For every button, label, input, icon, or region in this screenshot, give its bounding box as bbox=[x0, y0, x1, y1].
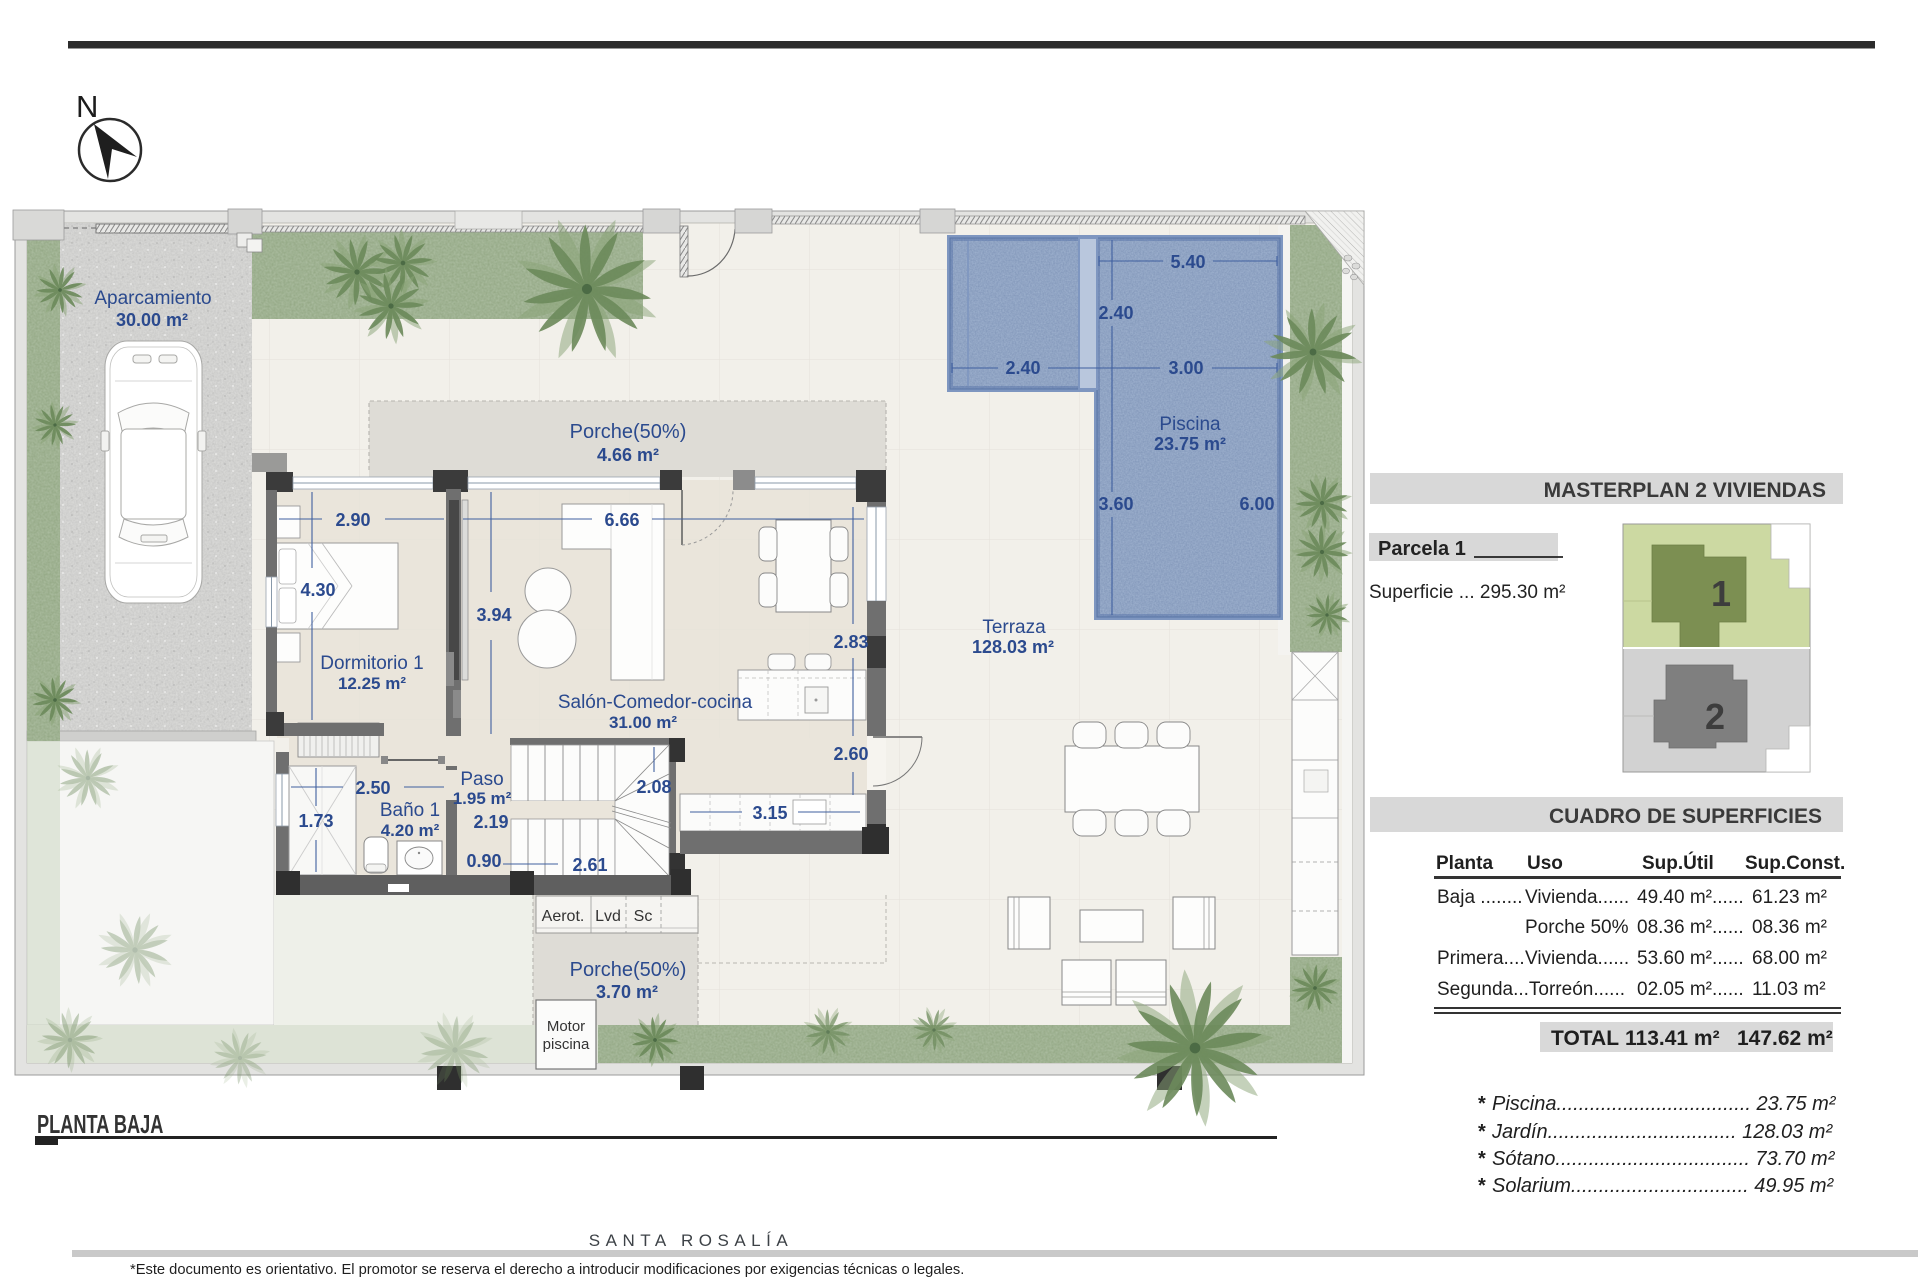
svg-text:Baño 1: Baño 1 bbox=[380, 800, 440, 821]
svg-text:5.40: 5.40 bbox=[1170, 252, 1205, 272]
svg-text:Paso: Paso bbox=[460, 769, 503, 790]
svg-text:147.62 m²: 147.62 m² bbox=[1737, 1027, 1833, 1050]
svg-text:2.40: 2.40 bbox=[1005, 358, 1040, 378]
svg-text:68.00 m²: 68.00 m² bbox=[1752, 948, 1827, 969]
svg-text:Vivienda......: Vivienda...... bbox=[1525, 948, 1629, 969]
svg-text:Jardín........................: Jardín..................................… bbox=[1491, 1121, 1833, 1143]
svg-text:11.03 m²: 11.03 m² bbox=[1752, 979, 1826, 1000]
svg-text:30.00 m²: 30.00 m² bbox=[116, 310, 188, 330]
svg-text:Vivienda......: Vivienda...... bbox=[1525, 887, 1629, 908]
svg-text:Aparcamiento: Aparcamiento bbox=[94, 288, 211, 309]
svg-text:Porche(50%): Porche(50%) bbox=[570, 959, 687, 981]
svg-text:2.83: 2.83 bbox=[833, 632, 868, 652]
svg-text:Dormitorio 1: Dormitorio 1 bbox=[320, 653, 423, 674]
svg-text:23.75 m²: 23.75 m² bbox=[1154, 434, 1226, 454]
svg-text:2.60: 2.60 bbox=[833, 744, 868, 764]
svg-text:1.95 m²: 1.95 m² bbox=[453, 789, 512, 808]
svg-text:3.15: 3.15 bbox=[752, 803, 787, 823]
svg-text:128.03 m²: 128.03 m² bbox=[972, 637, 1054, 657]
svg-text:TOTAL: TOTAL bbox=[1551, 1027, 1619, 1050]
svg-text:*Este documento es orientativo: *Este documento es orientativo. El promo… bbox=[130, 1262, 964, 1278]
svg-text:Sup.Const.: Sup.Const. bbox=[1745, 853, 1845, 874]
svg-text:CUADRO DE SUPERFICIES: CUADRO DE SUPERFICIES bbox=[1549, 805, 1822, 828]
svg-text:Lvd: Lvd bbox=[595, 908, 621, 925]
svg-text:N: N bbox=[76, 89, 98, 124]
svg-text:2.90: 2.90 bbox=[335, 510, 370, 530]
svg-text:*: * bbox=[1478, 1175, 1486, 1197]
svg-text:2.40: 2.40 bbox=[1098, 303, 1133, 323]
svg-text:SANTA ROSALÍA: SANTA ROSALÍA bbox=[589, 1231, 793, 1250]
svg-text:02.05 m²......: 02.05 m²...... bbox=[1637, 979, 1744, 1000]
svg-text:08.36 m²......: 08.36 m²...... bbox=[1637, 917, 1744, 938]
svg-text:Porche 50%: Porche 50% bbox=[1525, 917, 1629, 938]
svg-text:MASTERPLAN 2 VIVIENDAS: MASTERPLAN 2 VIVIENDAS bbox=[1544, 479, 1826, 502]
svg-text:113.41 m²: 113.41 m² bbox=[1625, 1027, 1720, 1050]
svg-text:3.70 m²: 3.70 m² bbox=[596, 982, 658, 1002]
svg-text:1: 1 bbox=[1711, 573, 1731, 614]
svg-text:Planta: Planta bbox=[1436, 853, 1493, 874]
svg-text:*: * bbox=[1478, 1121, 1486, 1143]
svg-text:08.36 m²: 08.36 m² bbox=[1752, 917, 1827, 938]
svg-text:Porche(50%): Porche(50%) bbox=[570, 421, 687, 443]
svg-text:Salón-Comedor-cocina: Salón-Comedor-cocina bbox=[558, 692, 753, 713]
svg-text:Motor: Motor bbox=[547, 1018, 585, 1035]
svg-text:3.94: 3.94 bbox=[476, 605, 511, 625]
svg-text:Sup.Útil: Sup.Útil bbox=[1642, 852, 1714, 874]
svg-text:Segunda...Torreón......: Segunda...Torreón...... bbox=[1437, 979, 1625, 1000]
svg-text:piscina: piscina bbox=[543, 1036, 590, 1053]
svg-text:3.60: 3.60 bbox=[1098, 494, 1133, 514]
svg-text:Sótano........................: Sótano..................................… bbox=[1492, 1148, 1836, 1170]
svg-text:49.40 m²......: 49.40 m²...... bbox=[1637, 887, 1744, 908]
svg-text:4.66 m²: 4.66 m² bbox=[597, 445, 659, 465]
svg-text:*: * bbox=[1478, 1093, 1486, 1115]
svg-text:2: 2 bbox=[1705, 696, 1725, 737]
svg-text:2.61: 2.61 bbox=[572, 855, 607, 875]
svg-text:6.00: 6.00 bbox=[1239, 494, 1274, 514]
svg-text:2.08: 2.08 bbox=[636, 777, 671, 797]
svg-text:Solarium......................: Solarium................................… bbox=[1492, 1175, 1835, 1197]
svg-text:*: * bbox=[1478, 1148, 1486, 1170]
svg-text:4.20 m²: 4.20 m² bbox=[381, 821, 440, 840]
svg-text:53.60 m²......: 53.60 m²...... bbox=[1637, 948, 1744, 969]
svg-text:Baja ........: Baja ........ bbox=[1437, 887, 1523, 908]
svg-text:2.19: 2.19 bbox=[473, 812, 508, 832]
svg-text:31.00 m²: 31.00 m² bbox=[609, 713, 677, 732]
svg-text:Piscina: Piscina bbox=[1159, 414, 1221, 435]
svg-text:Sc: Sc bbox=[634, 908, 653, 925]
svg-text:Uso: Uso bbox=[1527, 853, 1563, 874]
svg-text:Parcela 1: Parcela 1 bbox=[1378, 538, 1466, 560]
svg-text:12.25 m²: 12.25 m² bbox=[338, 674, 406, 693]
svg-text:Piscina.......................: Piscina.................................… bbox=[1492, 1093, 1837, 1115]
svg-text:2.50: 2.50 bbox=[355, 778, 390, 798]
svg-text:PLANTA BAJA: PLANTA BAJA bbox=[37, 1110, 163, 1139]
svg-text:0.90: 0.90 bbox=[466, 851, 501, 871]
svg-text:Terraza: Terraza bbox=[982, 617, 1046, 638]
svg-text:6.66: 6.66 bbox=[604, 510, 639, 530]
svg-text:61.23 m²: 61.23 m² bbox=[1752, 887, 1827, 908]
svg-text:3.00: 3.00 bbox=[1168, 358, 1203, 378]
svg-text:Aerot.: Aerot. bbox=[542, 908, 585, 925]
svg-text:4.30: 4.30 bbox=[300, 580, 335, 600]
svg-text:Primera....: Primera.... bbox=[1437, 948, 1525, 969]
svg-text:1.73: 1.73 bbox=[298, 811, 333, 831]
svg-text:Superficie ... 295.30 m²: Superficie ... 295.30 m² bbox=[1369, 582, 1565, 603]
